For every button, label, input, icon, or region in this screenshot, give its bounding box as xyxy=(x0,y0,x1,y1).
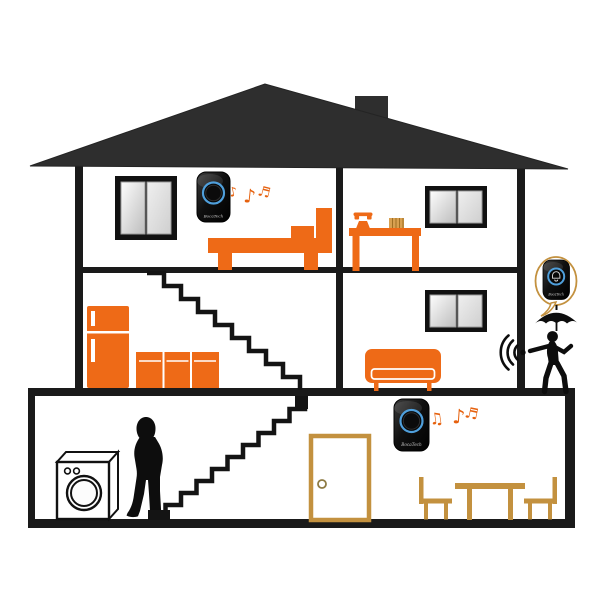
music-note-icon: ♬ xyxy=(256,183,272,202)
button-ring-led xyxy=(548,269,564,285)
phone-handset-end xyxy=(367,214,372,220)
roof xyxy=(30,84,568,169)
couch-body xyxy=(365,349,441,383)
door-panel xyxy=(311,436,369,520)
desk-top xyxy=(349,228,421,236)
music-notes-downstairs-icon: ♫ ♪ ♬ xyxy=(428,403,480,429)
chair-leg xyxy=(548,504,552,520)
brand-label: BocaTech xyxy=(400,442,422,447)
machine-door-glass xyxy=(71,480,97,506)
illustration-canvas: BocaTech ♪ ♪ ♬ xyxy=(0,0,600,600)
chime-button xyxy=(403,413,419,429)
office-window xyxy=(425,186,487,228)
ground-right-wall xyxy=(565,388,575,528)
stair-steps xyxy=(150,397,305,517)
desk xyxy=(349,228,421,271)
bedroom-window xyxy=(115,176,177,240)
brand-label: BocaTech xyxy=(203,214,224,219)
house-cross-section-illustration: BocaTech ♪ ♪ ♬ xyxy=(0,0,600,600)
lower-staircase xyxy=(148,396,308,520)
woman-silhouette xyxy=(127,417,163,518)
man-left-leg xyxy=(545,363,552,392)
machine-side-face xyxy=(109,452,118,519)
ground-floor-floor xyxy=(28,519,575,528)
desk-leg xyxy=(412,236,419,271)
brand-label: BocaTech xyxy=(547,293,564,297)
dining-table xyxy=(455,483,525,520)
stair-bottom-step xyxy=(148,510,170,520)
phone-base xyxy=(356,221,370,229)
man-right-leg xyxy=(557,363,566,392)
washing-machine xyxy=(57,452,118,519)
bed-mattress xyxy=(208,238,332,253)
window-pane xyxy=(430,295,456,327)
chair-leg xyxy=(424,504,428,520)
woman-head xyxy=(137,417,156,440)
running-man-silhouette xyxy=(530,331,571,391)
window-pane xyxy=(147,182,171,234)
doorbell-button-device: BocaTech xyxy=(543,260,570,300)
fridge-handle xyxy=(91,339,95,362)
bed-leg xyxy=(218,253,232,270)
table-leg xyxy=(467,489,472,520)
bed-headboard xyxy=(316,208,332,253)
machine-top-face xyxy=(57,452,118,462)
music-notes-upstairs-icon: ♪ ♪ ♬ xyxy=(228,183,272,208)
left-wall xyxy=(75,163,83,390)
bed-pillow xyxy=(291,226,314,238)
window-pane xyxy=(121,182,145,234)
desk-leg xyxy=(353,236,360,271)
living-room-window xyxy=(425,290,487,332)
music-note-icon: ♪ xyxy=(242,185,256,208)
right-wall xyxy=(517,165,525,390)
roof-group xyxy=(30,84,568,169)
books-stack xyxy=(389,218,404,229)
music-note-icon: ♫ xyxy=(428,408,445,429)
interior-wall xyxy=(336,168,343,390)
dining-set xyxy=(419,477,557,520)
doorbell-receiver-upstairs: BocaTech xyxy=(197,172,230,222)
freezer-handle xyxy=(91,311,95,326)
umbrella-icon xyxy=(535,305,578,331)
chime-button xyxy=(206,185,222,201)
umbrella-tip xyxy=(556,305,558,310)
window-pane xyxy=(458,295,482,327)
phone-handset-end xyxy=(355,214,360,220)
couch-leg xyxy=(427,383,432,391)
umbrella-canopy xyxy=(535,313,578,324)
dining-chair-left xyxy=(419,477,452,520)
window-pane xyxy=(458,191,482,223)
music-note-icon: ♬ xyxy=(463,403,480,423)
table-leg xyxy=(508,489,513,520)
machine-knob xyxy=(65,468,71,474)
fridge-divider xyxy=(87,331,129,334)
window-pane xyxy=(430,191,456,223)
signal-dot xyxy=(520,350,525,355)
front-door xyxy=(311,436,369,520)
ground-left-wall xyxy=(28,388,35,528)
man-head xyxy=(547,331,558,342)
signal-arcs xyxy=(501,336,518,370)
man-left-arm xyxy=(530,346,549,351)
telephone-icon xyxy=(354,213,373,229)
umbrella-handle xyxy=(556,322,558,331)
chair-leg xyxy=(444,504,448,520)
chair-leg xyxy=(528,504,532,520)
chair-seat xyxy=(419,499,452,504)
bed-leg xyxy=(304,253,318,270)
chair-seat xyxy=(524,499,557,504)
couch-leg xyxy=(374,383,379,391)
dining-chair-right xyxy=(524,477,557,520)
fridge xyxy=(87,306,129,388)
kitchen-cabinets xyxy=(136,352,219,388)
cabinet-body xyxy=(136,352,219,388)
woman-body xyxy=(127,437,163,518)
machine-knob xyxy=(74,468,80,474)
second-floor-divider xyxy=(75,267,525,273)
music-note-icon: ♪ xyxy=(228,185,239,201)
doorbell-receiver-downstairs: BocaTech xyxy=(394,399,429,451)
table-top xyxy=(455,483,525,489)
couch xyxy=(365,349,441,391)
